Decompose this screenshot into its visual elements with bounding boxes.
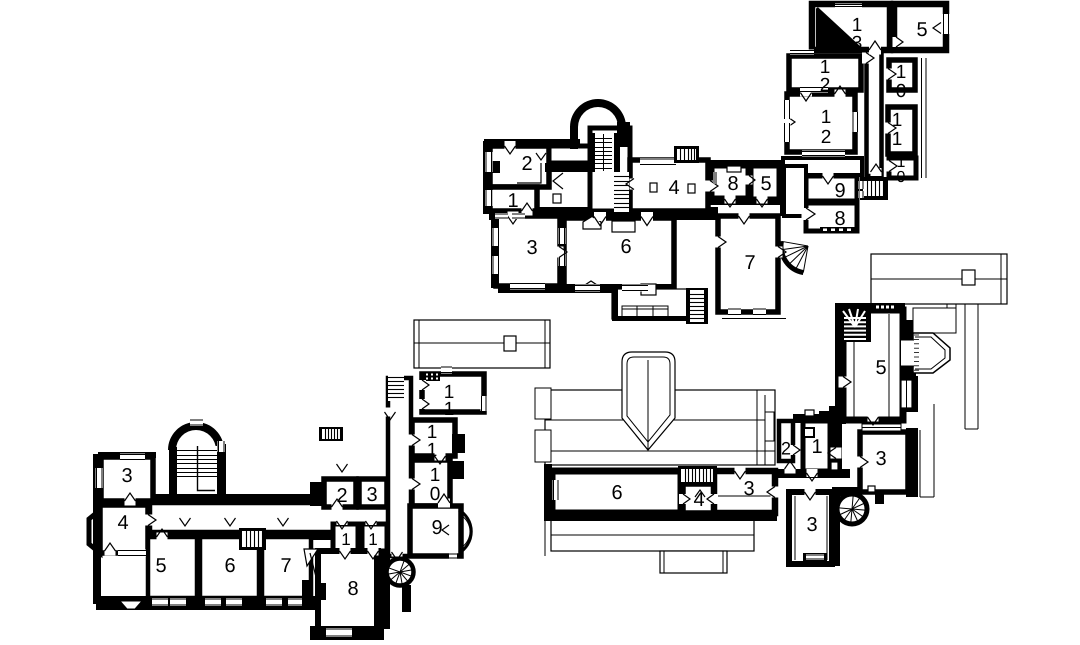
svg-text:1: 1	[427, 440, 438, 461]
svg-text:3: 3	[743, 478, 754, 500]
svg-text:5: 5	[916, 19, 927, 41]
svg-text:3: 3	[852, 33, 863, 54]
svg-text:3: 3	[526, 237, 537, 259]
svg-text:8: 8	[347, 578, 358, 600]
svg-text:5: 5	[760, 173, 771, 195]
svg-text:8: 8	[834, 208, 845, 230]
svg-text:1: 1	[821, 107, 832, 128]
svg-text:4: 4	[117, 512, 128, 534]
svg-text:9: 9	[834, 180, 845, 202]
svg-text:2: 2	[521, 153, 532, 175]
svg-text:3: 3	[366, 484, 377, 506]
svg-text:6: 6	[224, 555, 235, 577]
svg-text:8: 8	[727, 173, 738, 195]
svg-text:1: 1	[892, 129, 903, 150]
svg-text:0: 0	[897, 169, 906, 186]
svg-text:5: 5	[875, 357, 886, 379]
svg-text:2: 2	[820, 75, 831, 96]
svg-text:3: 3	[121, 465, 132, 487]
svg-text:5: 5	[155, 555, 166, 577]
svg-text:4: 4	[693, 489, 704, 511]
svg-text:0: 0	[896, 81, 907, 102]
svg-text:7: 7	[744, 252, 755, 274]
svg-text:1: 1	[341, 530, 350, 549]
svg-text:2: 2	[336, 485, 347, 507]
svg-text:3: 3	[806, 514, 817, 536]
svg-text:1: 1	[444, 399, 455, 420]
svg-text:3: 3	[875, 448, 886, 470]
svg-text:9: 9	[431, 517, 442, 539]
svg-text:6: 6	[611, 482, 622, 504]
svg-text:0: 0	[430, 484, 441, 505]
svg-text:1: 1	[507, 190, 518, 212]
svg-text:6: 6	[620, 236, 631, 258]
svg-text:2: 2	[781, 438, 791, 458]
svg-text:1: 1	[896, 62, 907, 83]
svg-text:4: 4	[668, 177, 679, 199]
svg-text:7: 7	[280, 555, 291, 577]
svg-text:1: 1	[430, 465, 441, 486]
svg-text:2: 2	[821, 127, 832, 148]
svg-text:1: 1	[811, 436, 822, 458]
svg-text:1: 1	[368, 530, 377, 549]
svg-text:1: 1	[892, 110, 903, 131]
